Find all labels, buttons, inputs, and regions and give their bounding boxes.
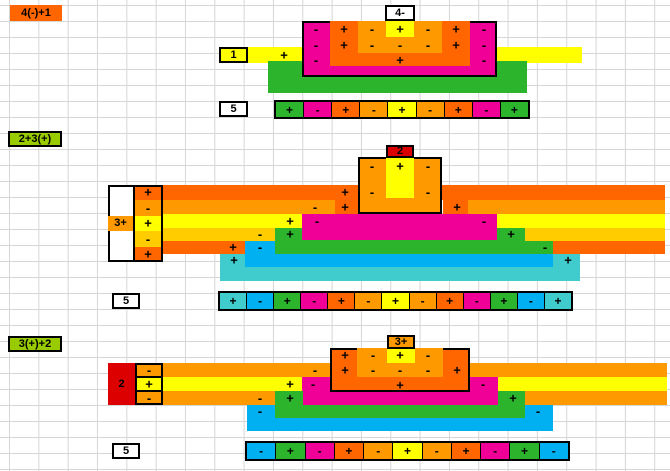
result-bar-cell[interactable]: - — [364, 443, 393, 459]
result-bar-cell[interactable]: + — [274, 293, 301, 309]
minus-sign: - — [426, 160, 430, 173]
minus-sign: - — [258, 241, 262, 254]
result-bar-cell[interactable]: + — [545, 293, 571, 309]
result-bar-cell[interactable]: - — [304, 102, 332, 117]
plus-sign: + — [286, 378, 294, 391]
minus-sign: - — [315, 215, 319, 228]
diagram-rect — [302, 214, 497, 240]
plus-sign: + — [341, 186, 349, 199]
plus-sign: + — [286, 228, 294, 241]
minus-sign: - — [313, 364, 317, 377]
plus-sign: + — [564, 254, 572, 267]
diagram-rect — [470, 363, 667, 377]
result-box[interactable]: 5 — [112, 293, 140, 309]
minus-sign: - — [313, 201, 317, 214]
diagram-rect — [468, 200, 665, 214]
minus-sign: - — [482, 23, 486, 36]
result-bar-cell[interactable]: + — [276, 102, 304, 117]
expr-label[interactable]: 2+3(+) — [8, 131, 62, 147]
result-bar-cell[interactable]: + — [335, 443, 364, 459]
value-box[interactable]: 3+ — [108, 216, 133, 231]
minus-sign: - — [426, 364, 430, 377]
result-bar-cell[interactable]: - — [417, 102, 445, 117]
minus-sign: - — [146, 233, 150, 246]
minus-sign: - — [536, 405, 540, 418]
result-bar: +-+-+-+-+-+-+ — [218, 291, 573, 311]
result-bar-cell[interactable]: - — [481, 443, 510, 459]
minus-sign: - — [311, 378, 315, 391]
minus-sign: - — [370, 39, 374, 52]
result-bar-cell[interactable]: + — [437, 293, 464, 309]
expr-label[interactable]: 3(+)+2 — [8, 336, 62, 352]
plus-sign: + — [340, 23, 348, 36]
result-box[interactable]: 5 — [219, 101, 248, 117]
plus-sign: + — [396, 23, 404, 36]
minus-sign: - — [147, 364, 151, 377]
result-bar: -+-+-+-+-+- — [245, 441, 570, 461]
result-bar-cell[interactable]: - — [355, 293, 382, 309]
result-bar-cell[interactable]: - — [464, 293, 491, 309]
plus-sign: + — [144, 186, 152, 199]
plus-sign: + — [340, 39, 348, 52]
result-bar-cell[interactable]: + — [452, 443, 481, 459]
result-bar-cell[interactable]: + — [332, 102, 360, 117]
minus-sign: - — [314, 54, 318, 67]
plus-sign: + — [144, 217, 152, 230]
minus-sign: - — [371, 364, 375, 377]
minus-sign: - — [426, 23, 430, 36]
result-bar-cell[interactable]: - — [518, 293, 545, 309]
result-bar-cell[interactable]: + — [220, 293, 247, 309]
value-box[interactable]: 2 — [386, 145, 414, 158]
result-bar-cell[interactable]: - — [306, 443, 335, 459]
result-bar-cell[interactable]: + — [445, 102, 473, 117]
minus-sign: - — [482, 39, 486, 52]
minus-sign: - — [398, 39, 402, 52]
result-bar-cell[interactable]: + — [510, 443, 539, 459]
plus-sign: + — [509, 392, 517, 405]
plus-sign: + — [452, 23, 460, 36]
result-bar: +-+-+-+-+ — [274, 100, 530, 119]
diagram-rect — [133, 200, 335, 214]
plus-sign: + — [341, 349, 349, 362]
minus-sign: - — [426, 186, 430, 199]
plus-sign: + — [396, 160, 404, 173]
diagram-rect — [525, 391, 667, 405]
result-bar-cell[interactable]: + — [276, 443, 305, 459]
minus-sign: - — [371, 349, 375, 362]
result-bar-cell[interactable]: + — [393, 443, 422, 459]
minus-sign: - — [370, 186, 374, 199]
minus-sign: - — [482, 54, 486, 67]
result-bar-cell[interactable]: + — [382, 293, 409, 309]
plus-sign: + — [507, 228, 515, 241]
minus-sign: - — [426, 39, 430, 52]
minus-sign: - — [370, 160, 374, 173]
result-bar-cell[interactable]: - — [423, 443, 452, 459]
result-bar-cell[interactable]: + — [388, 102, 416, 117]
plus-sign: + — [341, 201, 349, 214]
result-bar-cell[interactable]: - — [473, 102, 501, 117]
minus-sign: - — [482, 215, 486, 228]
plus-sign: + — [396, 379, 404, 392]
minus-sign: - — [398, 364, 402, 377]
result-bar-cell[interactable]: + — [328, 293, 355, 309]
minus-sign: - — [370, 23, 374, 36]
plus-sign: + — [452, 39, 460, 52]
diagram-rect — [498, 377, 667, 391]
plus-sign: + — [396, 349, 404, 362]
diagram-rect — [303, 391, 498, 405]
plus-sign: + — [144, 248, 152, 261]
minus-sign: - — [146, 202, 150, 215]
minus-sign: - — [258, 405, 262, 418]
result-bar-cell[interactable]: + — [501, 102, 528, 117]
spreadsheet-grid[interactable]: 4(-)+14-15+-+-+-+--+---+--+-+-+-+-+-+2+3… — [0, 0, 670, 471]
plus-sign: + — [286, 392, 294, 405]
result-bar-cell[interactable]: - — [540, 443, 568, 459]
minus-sign: - — [481, 378, 485, 391]
value-box[interactable]: 1 — [219, 47, 248, 63]
result-bar-cell[interactable]: - — [410, 293, 437, 309]
result-bar-cell[interactable]: - — [360, 102, 388, 117]
diagram-rect — [302, 377, 330, 391]
result-bar-cell[interactable]: - — [247, 443, 276, 459]
plus-sign: + — [453, 201, 461, 214]
expr-label[interactable]: 4(-)+1 — [10, 5, 62, 21]
diagram-rect — [163, 377, 302, 391]
result-bar-cell[interactable]: + — [491, 293, 518, 309]
plus-sign: + — [396, 54, 404, 67]
plus-sign: + — [341, 364, 349, 377]
plus-sign: + — [280, 49, 288, 62]
minus-sign: - — [314, 23, 318, 36]
minus-sign: - — [147, 392, 151, 405]
minus-sign: - — [426, 349, 430, 362]
result-bar-cell[interactable]: - — [247, 293, 274, 309]
plus-sign: + — [145, 378, 153, 391]
plus-sign: + — [230, 254, 238, 267]
diagram-rect — [497, 214, 665, 228]
minus-sign: - — [314, 39, 318, 52]
result-box[interactable]: 5 — [112, 443, 140, 459]
value-box[interactable]: 2 — [108, 363, 135, 405]
result-bar-cell[interactable]: - — [301, 293, 328, 309]
plus-sign: + — [453, 364, 461, 377]
diagram-rect — [163, 363, 330, 377]
minus-sign: - — [543, 241, 547, 254]
value-box[interactable]: 4- — [385, 5, 415, 21]
